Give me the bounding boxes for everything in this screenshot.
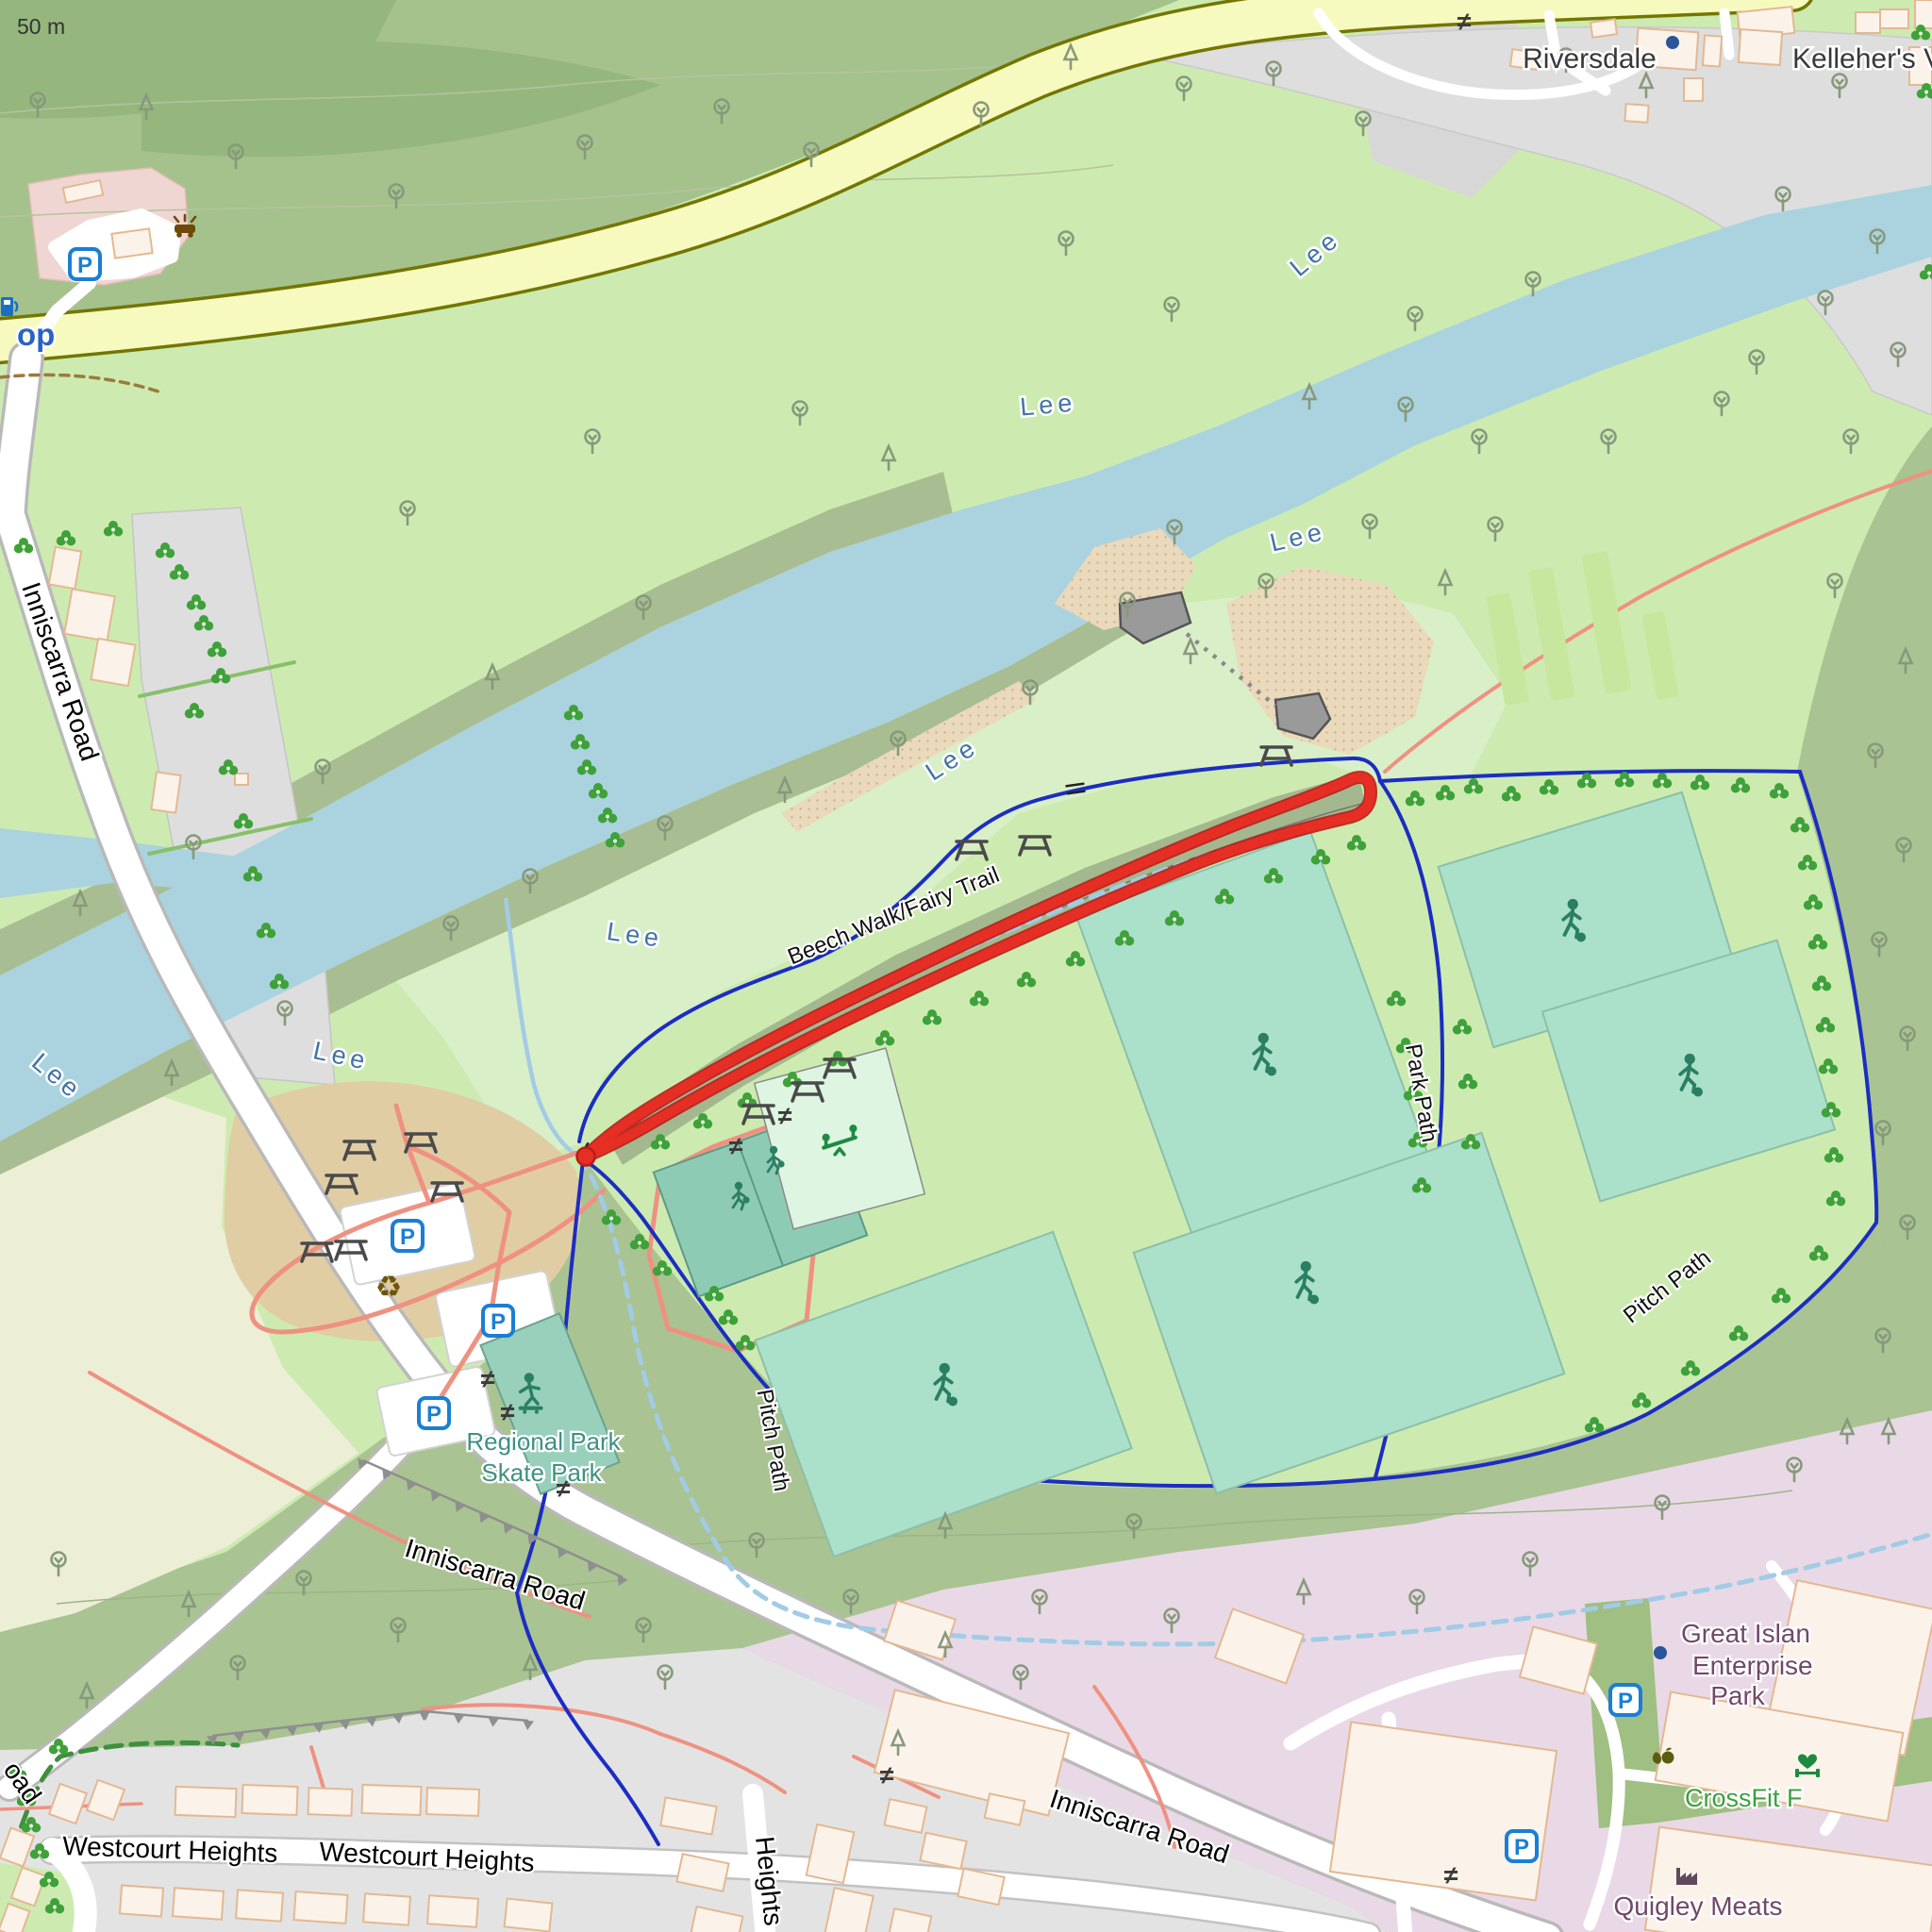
parking-icon [1507, 1831, 1537, 1861]
map-label: Kelleher's Vil [1792, 43, 1932, 75]
map-label: 50 m [17, 14, 65, 39]
building [173, 1888, 224, 1920]
building [1591, 19, 1617, 37]
map-label: Great Islan [1681, 1619, 1810, 1648]
building [49, 547, 82, 589]
parking-icon [1610, 1685, 1641, 1715]
map-label: Park [1710, 1681, 1766, 1710]
building [236, 1890, 283, 1921]
building [427, 1895, 478, 1927]
map-label: Quigley Meats [1614, 1891, 1783, 1921]
building [241, 1785, 297, 1815]
building [1684, 78, 1703, 101]
building [64, 589, 115, 641]
gate-icon: ≠ [778, 1102, 792, 1130]
map-label: Lee [1019, 388, 1077, 421]
building [308, 1788, 353, 1816]
building [1703, 35, 1722, 66]
recycling-icon [375, 1270, 403, 1304]
gate-icon: ≠ [481, 1365, 495, 1393]
map-label: CrossFit F [1685, 1784, 1803, 1812]
building [426, 1788, 479, 1816]
parking-icon [70, 249, 100, 279]
gate-icon: ≠ [880, 1761, 894, 1790]
building [1856, 12, 1880, 33]
map-label: Regional Park [466, 1427, 621, 1456]
building [294, 1891, 348, 1924]
building [91, 639, 135, 686]
gate-icon: ≠ [501, 1398, 515, 1426]
building [1739, 29, 1782, 65]
building [363, 1893, 410, 1924]
building [361, 1785, 421, 1815]
parking-icon [483, 1306, 513, 1336]
gate-icon: ≠ [1457, 8, 1472, 36]
building [235, 774, 248, 785]
building [1624, 104, 1648, 123]
building [120, 1886, 163, 1917]
map-canvas[interactable]: P ♻ [0, 0, 1932, 1932]
parking-icon [392, 1221, 423, 1251]
building [1915, 0, 1932, 28]
building [1880, 9, 1908, 28]
map-label: Skate Park [481, 1458, 602, 1487]
building [505, 1899, 553, 1932]
gate-icon: ≠ [1444, 1861, 1458, 1890]
building [151, 772, 180, 812]
route-start-marker [577, 1148, 595, 1166]
building [111, 228, 152, 258]
node-dot [1666, 36, 1679, 49]
building [175, 1787, 236, 1817]
gate-icon: ≠ [729, 1132, 743, 1160]
map-label: Enterprise [1692, 1651, 1813, 1680]
node-dot [1654, 1646, 1667, 1659]
map-label: Riversdale [1523, 43, 1657, 75]
parking-icon [419, 1398, 449, 1428]
map-label: op [17, 317, 55, 352]
